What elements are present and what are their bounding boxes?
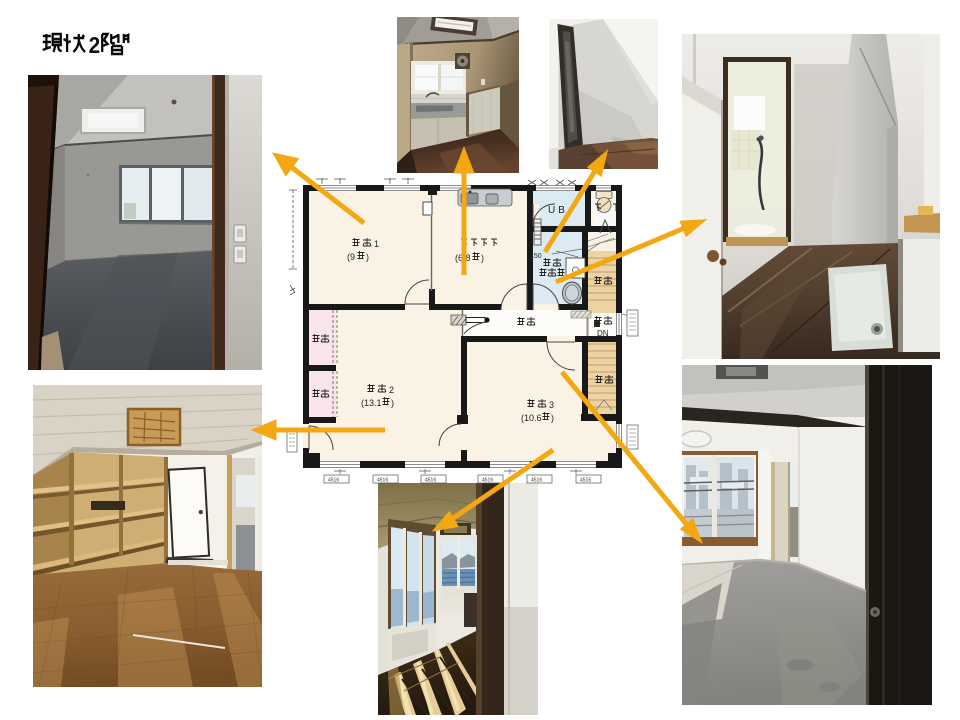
- svg-text:(6.8: (6.8: [455, 253, 471, 263]
- svg-text:1: 1: [374, 239, 379, 249]
- svg-text:DN: DN: [597, 329, 609, 338]
- svg-text:4516: 4516: [531, 478, 542, 484]
- svg-text:UB: UB: [548, 205, 568, 216]
- svg-text:(9: (9: [347, 252, 355, 262]
- svg-text:4516: 4516: [425, 478, 436, 484]
- svg-text:150: 150: [530, 253, 542, 260]
- svg-text:3: 3: [549, 400, 554, 410]
- svg-text:2: 2: [389, 385, 394, 395]
- svg-text:): ): [481, 253, 484, 263]
- svg-text:4516: 4516: [482, 478, 493, 484]
- svg-text:(10.6: (10.6: [521, 413, 542, 423]
- svg-text:): ): [366, 252, 369, 262]
- svg-text:4516: 4516: [377, 478, 388, 484]
- svg-text:2: 2: [89, 32, 101, 58]
- svg-text:4516: 4516: [580, 478, 591, 484]
- svg-text:): ): [391, 398, 394, 408]
- svg-text:(13.1: (13.1: [361, 398, 382, 408]
- svg-text:4516: 4516: [328, 478, 339, 484]
- svg-text:): ): [551, 413, 554, 423]
